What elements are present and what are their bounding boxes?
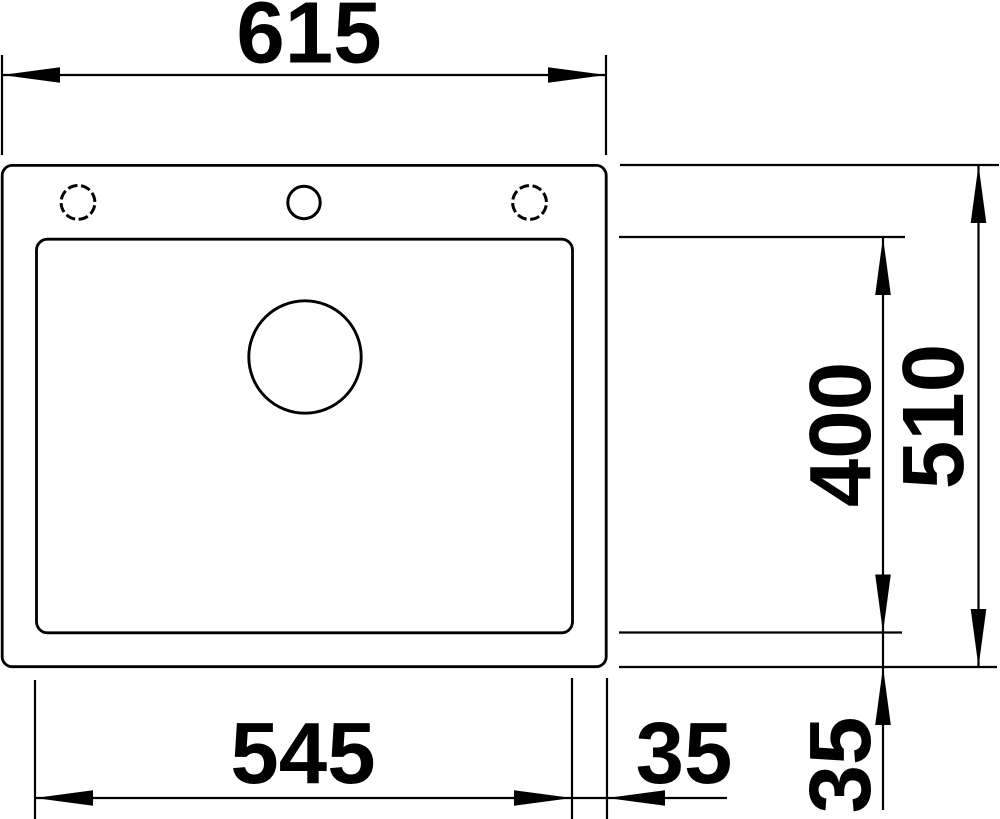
svg-text:615: 615	[236, 0, 381, 82]
svg-text:35: 35	[792, 717, 889, 814]
svg-text:35: 35	[636, 705, 733, 802]
svg-text:400: 400	[792, 362, 889, 507]
svg-text:545: 545	[230, 705, 375, 802]
svg-text:510: 510	[885, 344, 982, 489]
